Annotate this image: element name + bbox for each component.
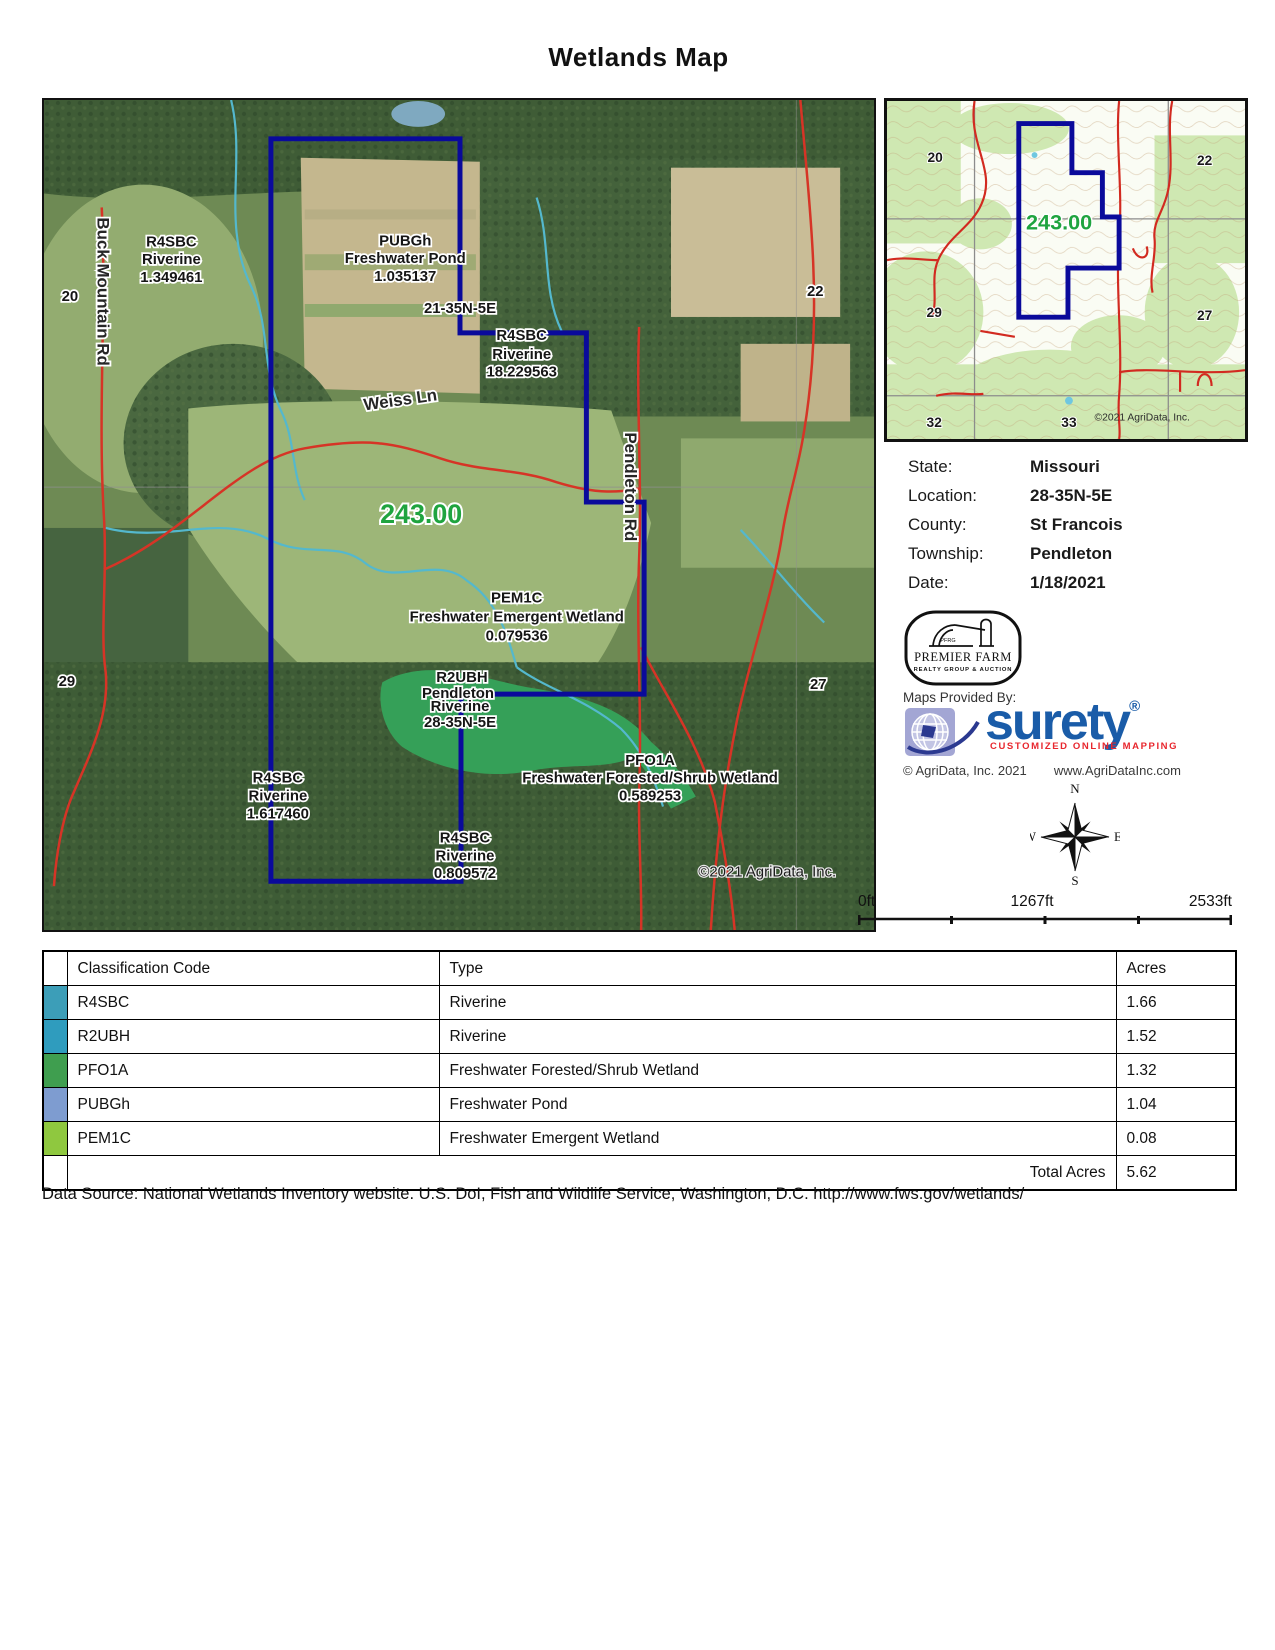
classification-swatch [43, 986, 67, 1020]
svg-text:Pendleton: Pendleton [422, 685, 494, 702]
scale-bar-labels: 0ft 1267ft 2533ft [858, 893, 1232, 911]
page-title: Wetlands Map [42, 42, 1235, 73]
logo-name: PREMIER FARM [914, 650, 1012, 664]
table-row: PUBGh Freshwater Pond 1.04 [43, 1088, 1236, 1122]
surety-website: www.AgriDataInc.com [1054, 763, 1181, 778]
svg-text:R4SBC: R4SBC [440, 829, 491, 846]
inset-section-33: 33 [1061, 415, 1077, 430]
table-header-row: Classification Code Type Acres [43, 951, 1236, 986]
info-row-state: State: Missouri [908, 452, 1123, 481]
svg-text:Riverine: Riverine [436, 847, 495, 864]
topo-imagery: 20 22 29 27 32 33 243.00 ©2021 AgriData,… [887, 101, 1245, 439]
svg-text:Riverine: Riverine [248, 788, 307, 805]
pond [391, 101, 445, 127]
compass-west-label: W [1030, 829, 1037, 844]
surety-logo: surety® CUSTOMIZED ONLINE MAPPING [903, 706, 1178, 758]
logo-border [906, 612, 1020, 684]
inset-section-29: 29 [927, 305, 943, 320]
wetland-label-r4sbc-sw: R4SBC Riverine 1.617460 [247, 770, 309, 823]
property-info: State: Missouri Location: 28-35N-5E Coun… [908, 452, 1123, 597]
surety-footer: © AgriData, Inc. 2021 www.AgriDataInc.co… [903, 763, 1181, 778]
surety-tagline: CUSTOMIZED ONLINE MAPPING [985, 741, 1178, 752]
inset-parcel-acreage: 243.00 [1026, 210, 1092, 235]
inset-section-20: 20 [928, 150, 944, 165]
inset-section-32: 32 [927, 415, 943, 430]
svg-text:Riverine: Riverine [492, 346, 551, 363]
scale-bar-rule [858, 915, 1232, 927]
info-value: 1/18/2021 [1030, 573, 1106, 593]
section-number-29: 29 [59, 673, 76, 690]
svg-text:18.229563: 18.229563 [486, 364, 556, 381]
column-header-acres: Acres [1116, 951, 1236, 986]
inset-copyright: ©2021 AgriData, Inc. [1095, 412, 1190, 423]
classification-type: Riverine [439, 1020, 1116, 1054]
info-value: St Francois [1030, 515, 1123, 535]
classification-acres: 1.04 [1116, 1088, 1236, 1122]
surety-wordmark: surety® CUSTOMIZED ONLINE MAPPING [985, 696, 1178, 752]
road-label-pendleton: Pendleton Rd [621, 432, 640, 541]
table-row: R2UBH Riverine 1.52 [43, 1020, 1236, 1054]
compass-star-icon [1041, 803, 1109, 871]
svg-text:0.809572: 0.809572 [434, 865, 496, 882]
svg-text:R2UBH: R2UBH [436, 669, 487, 686]
info-label: County: [908, 515, 1030, 535]
swatch-header-cell [43, 951, 67, 986]
classification-swatch [43, 1122, 67, 1156]
info-value: 28-35N-5E [1030, 486, 1112, 506]
svg-text:Riverine: Riverine [142, 251, 201, 268]
svg-text:1.349461: 1.349461 [140, 269, 202, 286]
scale-end: 2533ft [1189, 893, 1232, 911]
classification-swatch [43, 1088, 67, 1122]
info-label: Date: [908, 573, 1030, 593]
registered-mark: ® [1129, 698, 1140, 715]
svg-text:PEM1C: PEM1C [491, 590, 543, 607]
wetland-label-r4sbc-nw: R4SBC Riverine 1.349461 [140, 233, 202, 286]
classification-acres: 1.66 [1116, 986, 1236, 1020]
compass-south-label: S [1071, 873, 1078, 887]
main-aerial-map: Buck Mountain Rd Pendleton Rd Weiss Ln 2… [42, 98, 876, 932]
classification-type: Riverine [439, 986, 1116, 1020]
inset-section-27: 27 [1197, 308, 1213, 323]
logo-tagline: REALTY GROUP & AUCTION [914, 667, 1013, 673]
aerial-imagery: Buck Mountain Rd Pendleton Rd Weiss Ln 2… [44, 100, 874, 930]
column-header-code: Classification Code [67, 951, 439, 986]
parcel-acreage-label: 243.00 [380, 499, 462, 529]
classification-code: PFO1A [67, 1054, 439, 1088]
info-row-township: Township: Pendleton [908, 539, 1123, 568]
logo-abbr: PFRG [940, 638, 955, 644]
inset-topo-map: 20 22 29 27 32 33 243.00 ©2021 AgriData,… [884, 98, 1248, 442]
info-row-location: Location: 28-35N-5E [908, 481, 1123, 510]
classification-type: Freshwater Forested/Shrub Wetland [439, 1054, 1116, 1088]
info-value: Missouri [1030, 457, 1100, 477]
compass-north-label: N [1070, 781, 1080, 796]
compass-east-label: E [1114, 829, 1120, 844]
data-source-note: Data Source: National Wetlands Inventory… [42, 1185, 1235, 1204]
classification-code: R4SBC [67, 986, 439, 1020]
wetlands-classification-table: Classification Code Type Acres R4SBC Riv… [42, 950, 1237, 1191]
scale-middle: 1267ft [1011, 893, 1054, 911]
compass-rose: N S E W [1030, 781, 1120, 887]
classification-acres: 1.32 [1116, 1054, 1236, 1088]
svg-text:PFO1A: PFO1A [625, 752, 675, 769]
wetlands-report-page: Wetlands Map [0, 0, 1275, 1650]
classification-type: Freshwater Pond [439, 1088, 1116, 1122]
section-number-27: 27 [810, 676, 827, 693]
road-label-buck-mountain: Buck Mountain Rd [94, 217, 113, 365]
svg-text:R4SBC: R4SBC [253, 770, 304, 787]
svg-text:28-35N-5E: 28-35N-5E [424, 714, 496, 731]
info-row-county: County: St Francois [908, 510, 1123, 539]
info-row-date: Date: 1/18/2021 [908, 568, 1123, 597]
column-header-type: Type [439, 951, 1116, 986]
surety-copyright: © AgriData, Inc. 2021 [903, 763, 1027, 778]
svg-text:R4SBC: R4SBC [496, 327, 547, 344]
svg-text:R4SBC: R4SBC [146, 233, 197, 250]
table-row: PEM1C Freshwater Emergent Wetland 0.08 [43, 1122, 1236, 1156]
classification-swatch [43, 1020, 67, 1054]
classification-type: Freshwater Emergent Wetland [439, 1122, 1116, 1156]
map-copyright: ©2021 AgriData, Inc. [698, 863, 836, 880]
svg-text:Freshwater Forested/Shrub Wetl: Freshwater Forested/Shrub Wetland [522, 770, 778, 787]
svg-text:0.079536: 0.079536 [486, 627, 548, 644]
scale-bar: 0ft 1267ft 2533ft [858, 893, 1232, 927]
svg-text:1.035137: 1.035137 [374, 268, 436, 285]
svg-text:0.589253: 0.589253 [619, 788, 681, 805]
info-label: State: [908, 457, 1030, 477]
info-label: Location: [908, 486, 1030, 506]
classification-code: PUBGh [67, 1088, 439, 1122]
wetland-label-r4sbc-s: R4SBC Riverine 0.809572 [434, 829, 496, 882]
classification-code: R2UBH [67, 1020, 439, 1054]
section-label-21-35n-5e: 21-35N-5E [424, 300, 496, 317]
premier-farm-logo: PFRG PREMIER FARM REALTY GROUP & AUCTION [903, 609, 1023, 687]
classification-acres: 1.52 [1116, 1020, 1236, 1054]
svg-text:PUBGh: PUBGh [379, 232, 431, 249]
globe-icon [903, 706, 983, 758]
classification-swatch [43, 1054, 67, 1088]
info-value: Pendleton [1030, 544, 1112, 564]
svg-text:Freshwater Pond: Freshwater Pond [345, 250, 466, 267]
classification-code: PEM1C [67, 1122, 439, 1156]
table-row: PFO1A Freshwater Forested/Shrub Wetland … [43, 1054, 1236, 1088]
classification-acres: 0.08 [1116, 1122, 1236, 1156]
table-row: R4SBC Riverine 1.66 [43, 986, 1236, 1020]
scale-start: 0ft [858, 893, 875, 911]
inset-section-22: 22 [1197, 153, 1213, 168]
info-label: Township: [908, 544, 1030, 564]
svg-text:1.617460: 1.617460 [247, 806, 309, 823]
section-number-20: 20 [62, 288, 79, 305]
section-number-22: 22 [807, 283, 824, 300]
wetland-label-r4sbc-center: R4SBC Riverine 18.229563 [486, 327, 556, 381]
svg-text:Freshwater Emergent Wetland: Freshwater Emergent Wetland [410, 608, 624, 625]
